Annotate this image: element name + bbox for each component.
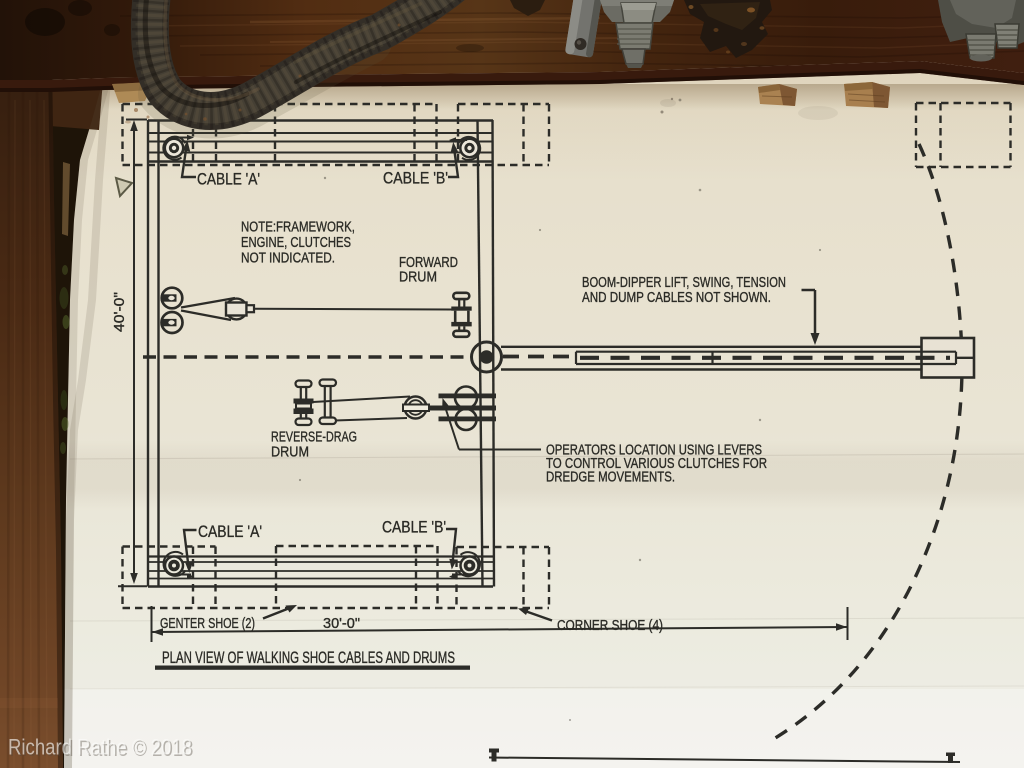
- svg-text:DRUM: DRUM: [399, 269, 437, 286]
- svg-text:DRUM: DRUM: [271, 444, 309, 461]
- svg-text:PLAN VIEW OF WALKING SHOE CABL: PLAN VIEW OF WALKING SHOE CABLES AND DRU…: [162, 648, 455, 667]
- svg-text:CABLE 'A': CABLE 'A': [197, 170, 260, 189]
- svg-text:AND DUMP CABLES NOT SHOWN.: AND DUMP CABLES NOT SHOWN.: [582, 290, 771, 306]
- svg-text:NOT INDICATED.: NOT INDICATED.: [241, 250, 335, 267]
- svg-text:GENTER SHOE (2): GENTER SHOE (2): [160, 616, 255, 632]
- svg-text:ENGINE, CLUTCHES: ENGINE, CLUTCHES: [241, 234, 351, 251]
- svg-text:40'-0": 40'-0": [111, 292, 128, 332]
- svg-text:CABLE 'A': CABLE 'A': [198, 522, 262, 541]
- svg-text:BOOM-DIPPER LIFT, SWING, TENSI: BOOM-DIPPER LIFT, SWING, TENSION: [582, 275, 786, 291]
- svg-text:30'-0": 30'-0": [323, 615, 360, 632]
- svg-text:CORNER SHOE (4): CORNER SHOE (4): [557, 618, 663, 634]
- svg-text:DREDGE MOVEMENTS.: DREDGE MOVEMENTS.: [546, 470, 675, 486]
- svg-text:CABLE 'B': CABLE 'B': [382, 518, 446, 537]
- svg-text:CABLE 'B': CABLE 'B': [383, 169, 448, 188]
- svg-text:NOTE:FRAMEWORK,: NOTE:FRAMEWORK,: [241, 219, 355, 236]
- svg-text:Richard Rathe © 2018: Richard Rathe © 2018: [8, 735, 192, 760]
